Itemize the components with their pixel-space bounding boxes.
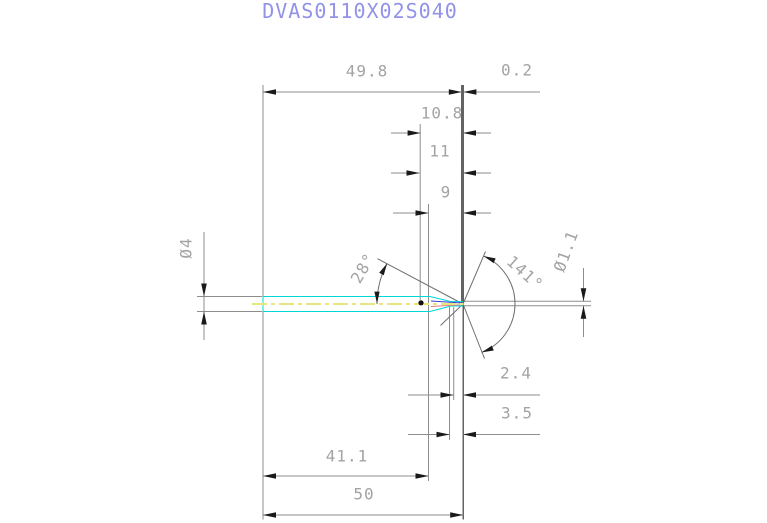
drawing-title: DVAS0110X02S040 — [262, 0, 458, 23]
dim-label-2-4: 2.4 — [500, 364, 532, 383]
dim-label-9: 9 — [441, 183, 452, 202]
point-heel-line — [441, 304, 464, 326]
tip-extension-lines — [462, 85, 463, 520]
dim-label-10-8: 10.8 — [421, 104, 464, 123]
dim-label-body-length: 49.8 — [346, 62, 389, 81]
dim-label-41-1: 41.1 — [326, 447, 369, 466]
dim-label-3-5: 3.5 — [501, 404, 533, 423]
dim-label-tip-back-offset: 0.2 — [501, 61, 533, 80]
dim-label-overall-length: 50 — [353, 485, 374, 504]
drawing-canvas: DVAS0110X02S040 49.8 0.2 10.8 11 9 Ø4 28… — [0, 0, 767, 523]
reference-dot — [418, 300, 423, 305]
dim-label-11: 11 — [429, 142, 450, 161]
dim-label-shank-diameter: Ø4 — [177, 237, 196, 258]
point-angle-lower-leg — [463, 304, 485, 359]
point-angle-upper-leg — [463, 252, 486, 305]
extension-lines — [197, 85, 591, 520]
